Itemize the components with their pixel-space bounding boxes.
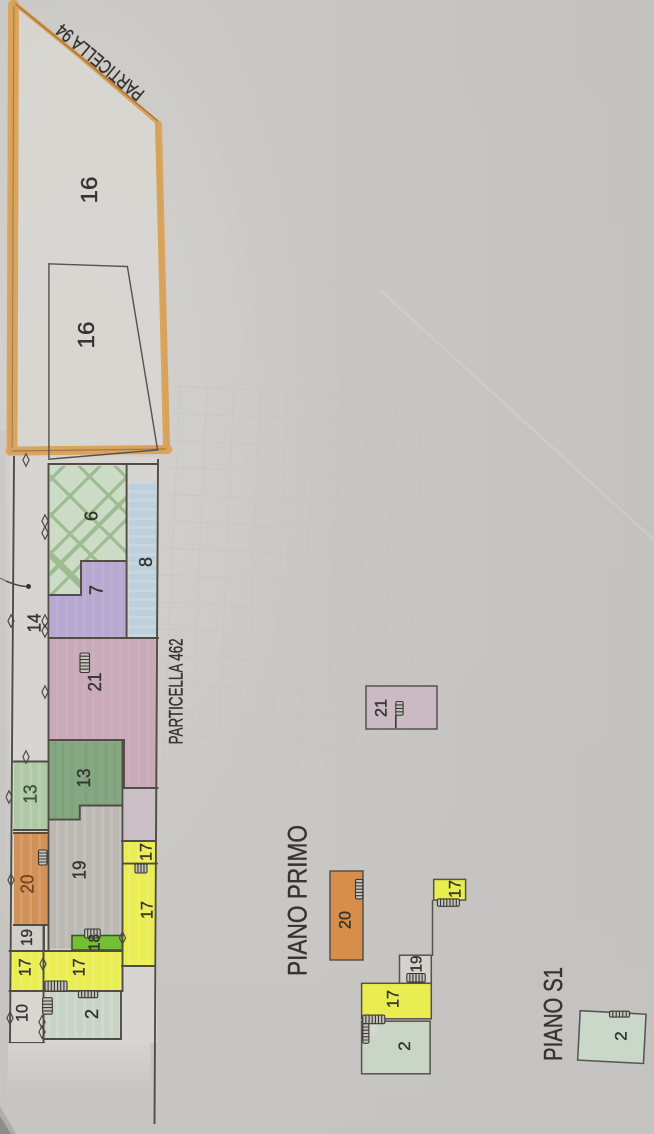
- svg-text:19: 19: [19, 929, 36, 946]
- svg-text:16: 16: [76, 177, 102, 204]
- svg-text:16: 16: [73, 322, 99, 349]
- svg-text:20: 20: [18, 875, 38, 894]
- svg-text:PARTICELLA 462: PARTICELLA 462: [166, 638, 188, 744]
- svg-text:17: 17: [138, 901, 157, 919]
- svg-text:13: 13: [74, 769, 94, 788]
- svg-text:2: 2: [82, 1009, 102, 1019]
- svg-text:21: 21: [372, 699, 391, 717]
- svg-text:PIANO PRIMO: PIANO PRIMO: [283, 825, 313, 976]
- svg-text:17: 17: [70, 958, 89, 976]
- svg-text:17: 17: [446, 880, 465, 898]
- svg-text:2: 2: [612, 1031, 631, 1040]
- svg-text:17: 17: [16, 958, 35, 976]
- svg-text:20: 20: [336, 911, 355, 929]
- svg-text:18: 18: [87, 934, 104, 951]
- svg-text:13: 13: [21, 785, 41, 804]
- svg-text:19: 19: [70, 861, 90, 880]
- svg-text:7: 7: [87, 585, 107, 595]
- svg-text:14: 14: [25, 614, 45, 633]
- svg-text:6: 6: [82, 511, 102, 521]
- svg-text:19: 19: [409, 955, 426, 972]
- svg-text:PIANO S1: PIANO S1: [538, 967, 568, 1061]
- svg-text:8: 8: [136, 557, 156, 567]
- svg-text:2: 2: [395, 1041, 414, 1050]
- svg-text:10: 10: [13, 1004, 32, 1022]
- svg-text:17: 17: [137, 843, 156, 861]
- svg-text:21: 21: [85, 673, 105, 692]
- svg-text:17: 17: [384, 990, 403, 1008]
